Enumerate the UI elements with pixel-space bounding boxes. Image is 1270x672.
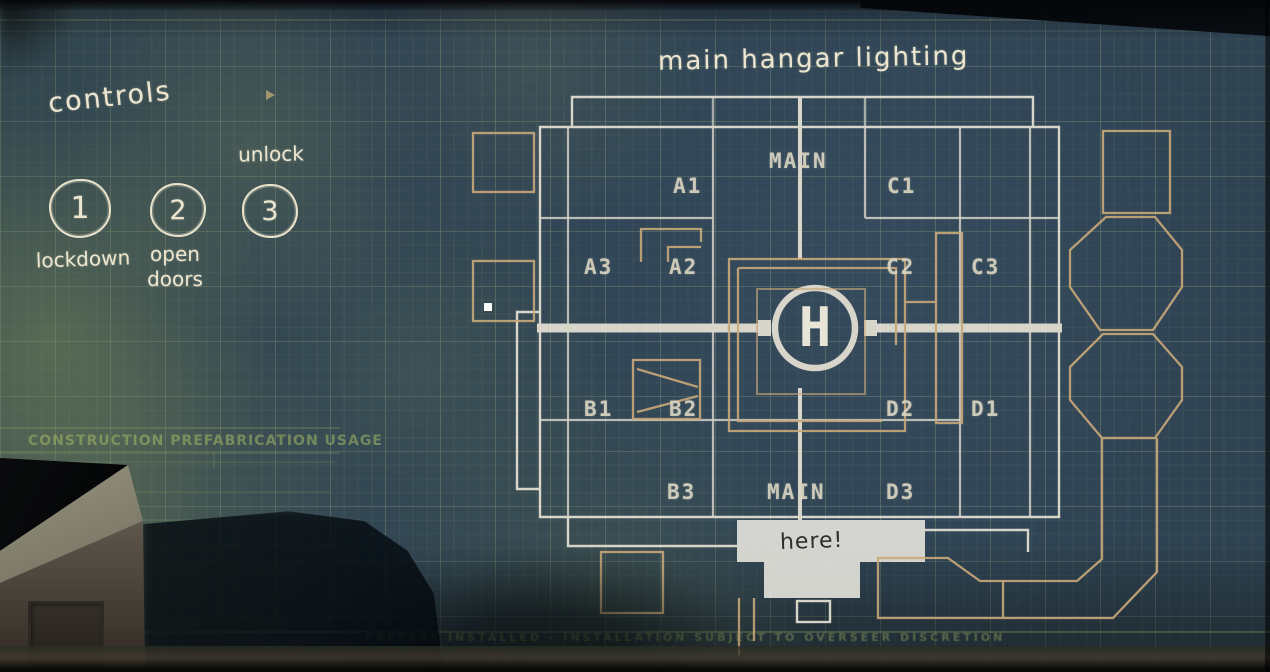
helipad-left-nub: [758, 320, 771, 336]
control-label-lockdown: lockdown: [28, 245, 139, 274]
control-button-3[interactable]: 3: [242, 184, 298, 238]
control-label-unlock: unlock: [235, 141, 307, 167]
zone-label-main-top: MAIN: [769, 149, 828, 173]
zone-label-b2: B2: [669, 397, 698, 421]
zone-label-c3: C3: [971, 255, 1000, 279]
arrow-icon: [266, 90, 275, 100]
map-band-ticks: [713, 97, 865, 127]
zone-label-a2: A2: [669, 255, 698, 279]
zone-label-d2: D2: [886, 397, 915, 421]
tan-chain-rect: [1103, 131, 1170, 213]
map-second-outline-left: [568, 517, 737, 546]
zone-label-a3: A3: [584, 255, 613, 279]
zone-label-b1: B1: [584, 397, 613, 421]
tan-square-left-top: [473, 133, 534, 192]
control-button-1[interactable]: 1: [49, 179, 111, 238]
map-second-outline-right: [922, 530, 1028, 552]
map-title: main hangar lighting: [658, 41, 970, 76]
map-left-bump: [517, 312, 540, 489]
control-label-open-doors: open doors: [141, 242, 209, 292]
helipad-h-label: H: [786, 299, 844, 357]
floor-edge-band: [0, 646, 1270, 672]
zone-label-a1: A1: [673, 174, 702, 198]
control-number-3: 3: [261, 196, 278, 227]
control-number-1: 1: [70, 191, 89, 226]
tan-octagon-upper: [1070, 217, 1182, 330]
here-note: here!: [780, 528, 844, 555]
zone-label-b3: B3: [667, 480, 696, 504]
hangar-blueprint-scene: CONSTRUCTION PREFABRICATION USAGE PREFAB…: [0, 0, 1270, 672]
zone-label-c1: C1: [887, 174, 916, 198]
tan-octagon-lower: [1070, 334, 1182, 438]
exit-nub-outline: [797, 601, 830, 622]
control-button-2[interactable]: 2: [150, 183, 206, 237]
zone-label-main-bottom: MAIN: [767, 480, 826, 504]
wall-right-edge: [1265, 0, 1270, 672]
top-left-corner-shadow: [0, 0, 70, 95]
control-number-2: 2: [169, 195, 186, 226]
map-top-band: [572, 97, 1033, 127]
zone-label-d3: D3: [886, 480, 915, 504]
desk-console: [0, 455, 150, 672]
zone-label-c2: C2: [886, 255, 915, 279]
zone-label-d1: D1: [971, 397, 1000, 421]
crosshair-cursor: [484, 303, 492, 311]
